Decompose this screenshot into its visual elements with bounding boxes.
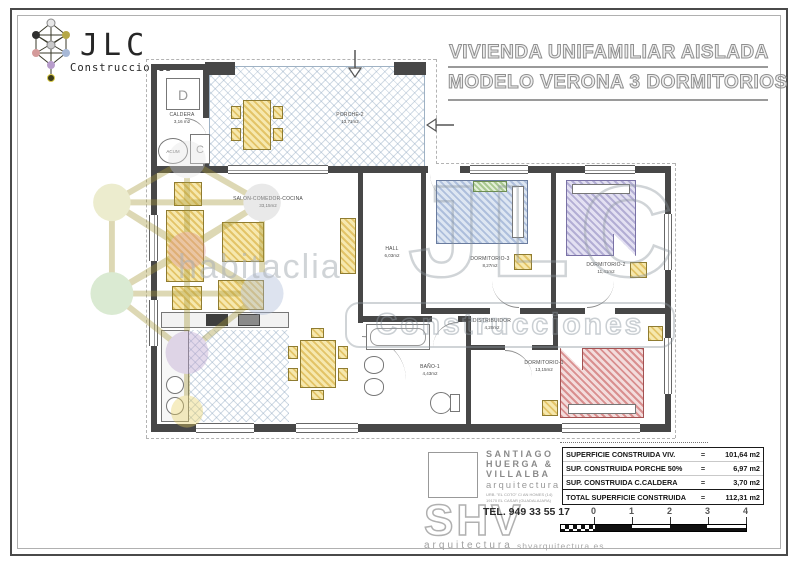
caldera-wall-left (151, 64, 157, 172)
boiler-c-unit: C (190, 134, 210, 164)
window-dorm1-south (562, 423, 640, 433)
scale-tick-mark (708, 517, 709, 524)
room-area: 33,15m2 (222, 203, 314, 209)
architect-name-line3: VILLALBA (486, 469, 551, 479)
architect-address-line1: URB. "EL COTO" C/ AN HOMES (14) (486, 492, 552, 497)
salon-armchair (172, 286, 202, 310)
scale-tick-mark (670, 517, 671, 524)
scale-tick-label: 3 (705, 506, 710, 516)
row-label: SUPERFICIE CONSTRUIDA VIV. (566, 450, 696, 459)
scale-tick-mark (632, 517, 633, 524)
wall-corridor-north-c (615, 308, 671, 314)
row-label: SUP. CONSTRUIDA C.CALDERA (566, 478, 696, 487)
kitchen-sink-bowl (166, 376, 184, 394)
salon-sideboard (218, 280, 264, 310)
wall-corridor-south-a (466, 345, 505, 350)
window-salon-north (228, 165, 328, 174)
scale-tick-mark (746, 517, 747, 524)
scale-segment (707, 525, 746, 531)
row-label: SUP. CONSTRUIDA PORCHE 50% (566, 464, 696, 473)
overhang-line-right (675, 163, 676, 438)
room-area: 4,43m2 (408, 371, 452, 377)
table-row: SUP. CONSTRUIDA PORCHE 50% = 6,97 m2 (563, 462, 763, 476)
kitchen-oven (238, 314, 260, 326)
architect-profession: arquitectura (486, 480, 560, 491)
room-name: SALON-COMEDOR-COCINA (222, 196, 314, 203)
table-row: SUPERFICIE CONSTRUIDA VIV. = 101,64 m2 (563, 448, 763, 462)
room-label-dorm2: DORMITORIO-2 11,41m2 (572, 262, 640, 274)
porch-floor (209, 66, 425, 170)
porch-pillar-right (394, 62, 426, 75)
drawing-title-line1: VIVIENDA UNIFAMILIAR AISLADA (448, 42, 770, 64)
wall-dorm3-dorm2 (551, 173, 556, 314)
areas-table: SUPERFICIE CONSTRUIDA VIV. = 101,64 m2 S… (562, 447, 764, 505)
bathtub-inner (370, 328, 426, 346)
salon-armchair (174, 182, 202, 206)
dining-chair (338, 346, 348, 359)
room-area: 4,20m2 (458, 325, 526, 331)
scale-tick-mark (594, 517, 595, 524)
salon-tv-unit (340, 218, 356, 274)
salon-coffee-table (222, 222, 264, 262)
room-label-porche: PORCHE-2 13,71m2 (318, 112, 382, 124)
porch-table (243, 100, 271, 150)
drawing-title-line2: MODELO VERONA 3 DORMITORIOS (448, 72, 770, 94)
kitchen-sink-bowl (166, 397, 184, 415)
dining-chair (311, 328, 324, 338)
architect-address-line2: 19170 EL CASAR (GUADALAJARA) (486, 498, 551, 503)
logo-company-name: JLC (80, 28, 149, 63)
toilet-tank (450, 394, 460, 412)
bath-sink (364, 378, 384, 396)
dorm3-pillow (512, 186, 524, 238)
porch-chair (273, 128, 283, 141)
boiler-d-unit: D (166, 78, 200, 110)
dining-chair (338, 368, 348, 381)
dorm3-desk (473, 181, 507, 192)
window-dorm1-east (664, 338, 672, 394)
title-bottom-line (448, 99, 768, 101)
entrance-door-gap (428, 166, 460, 173)
overhang-line-bottom (146, 438, 675, 439)
room-area: 11,41m2 (572, 269, 640, 275)
total-equals: = (696, 493, 710, 502)
window-dorm2-north (585, 165, 635, 174)
boiler-accumulator: ACUM (158, 138, 188, 164)
room-label-distribuidor: DISTRIBUIDOR 4,20m2 (458, 318, 526, 330)
scale-tick-label: 4 (743, 506, 748, 516)
row-equals: = (696, 450, 710, 459)
shv-logo-box (428, 452, 478, 498)
architect-name-line2: HUERGA & (486, 459, 554, 469)
dining-chair (311, 390, 324, 400)
row-equals: = (696, 464, 710, 473)
drawing-sheet: { "logo": { "company": "JLC", "subtitle"… (0, 0, 800, 566)
porch-pillar-left (205, 62, 235, 75)
scale-segment (670, 525, 708, 531)
wall-hall-dorm3 (421, 173, 426, 308)
jlc-tree-logo-icon (28, 18, 74, 84)
scale-segment (632, 525, 670, 531)
window-salon-south (296, 423, 358, 433)
room-label-bano1: BAÑO-1 4,43m2 (408, 364, 452, 376)
scale-tick-label: 0 (591, 506, 596, 516)
shv-watermark-logo: SHV (424, 496, 523, 546)
architect-phone: TEL. 949 33 55 17 (483, 506, 570, 518)
scale-segment-checker (561, 525, 595, 531)
room-label-hall: HALL 6,03m2 (368, 246, 416, 258)
wall-salon-hall (358, 173, 363, 323)
row-value: 3,70 m2 (710, 478, 760, 487)
room-label-salon: SALON-COMEDOR-COCINA 33,15m2 (222, 196, 314, 208)
shv-watermark-site: shvarquitectura.es (517, 541, 604, 551)
table-total-row: TOTAL SUPERFICIE CONSTRUIDA = 112,31 m2 (563, 490, 763, 504)
total-label: TOTAL SUPERFICIE CONSTRUIDA (566, 493, 696, 502)
dining-chair (288, 346, 298, 359)
salon-sofa (166, 210, 204, 282)
room-label-caldera: CALDERA 3,16 m2 (158, 112, 206, 124)
porch-chair (231, 128, 241, 141)
scale-bar-strip (560, 524, 747, 532)
entry-arrow-left-icon (426, 118, 454, 132)
dorm1-pillow (568, 404, 636, 414)
wall-bath-north (358, 316, 432, 322)
room-area: 6,03m2 (368, 253, 416, 259)
dorm2-bed-fold (613, 234, 636, 256)
wall-bath-east (466, 322, 471, 424)
room-label-dorm1: DORMITORIO-1 13,15m2 (508, 360, 580, 372)
table-row: SUP. CONSTRUIDA C.CALDERA = 3,70 m2 (563, 476, 763, 490)
total-value: 112,31 m2 (710, 493, 760, 502)
window-dorm3-north (470, 165, 528, 174)
room-label-dorm3: DORMITORIO-3 8,27m2 (456, 256, 524, 268)
room-area: 8,27m2 (456, 263, 524, 269)
bath-sink (364, 356, 384, 374)
kitchen-stove (206, 314, 228, 326)
porch-chair (273, 106, 283, 119)
bathtub (366, 324, 430, 350)
dining-table (300, 340, 336, 388)
window-salon-west-2 (149, 300, 158, 346)
window-dorm2-east (664, 214, 672, 270)
scale-tick-label: 2 (667, 506, 672, 516)
window-kitchen-south (196, 423, 254, 433)
room-area: 13,15m2 (508, 367, 580, 373)
entry-arrow-down-icon (347, 50, 363, 78)
toilet (430, 392, 452, 414)
table-top-dotted-line (560, 442, 708, 443)
scale-bar: 0 1 2 3 4 (560, 506, 760, 536)
row-value: 6,97 m2 (710, 464, 760, 473)
shv-watermark-caption: arquitectura (424, 540, 513, 551)
dining-chair (288, 368, 298, 381)
caldera-wall-right-upper (203, 64, 209, 118)
scale-segment (595, 525, 633, 531)
overhang-line-top (146, 59, 436, 60)
dorm2-pillow (572, 184, 630, 194)
wall-west (151, 166, 157, 432)
wall-corridor-north-a (421, 308, 490, 314)
wall-distrib-dorm1 (553, 314, 558, 350)
dorm1-nightstand (542, 400, 558, 416)
row-value: 101,64 m2 (710, 450, 760, 459)
scale-tick-label: 1 (629, 506, 634, 516)
room-area: 13,71m2 (318, 119, 382, 125)
caldera-wall-top (151, 64, 209, 70)
porch-chair (231, 106, 241, 119)
architect-name-line1: SANTIAGO (486, 449, 554, 459)
row-equals: = (696, 478, 710, 487)
dorm1-nightstand (648, 326, 663, 341)
title-separator-line (448, 66, 768, 68)
room-area: 3,16 m2 (158, 119, 206, 125)
window-salon-west-1 (149, 215, 158, 261)
overhang-line-east (436, 163, 675, 164)
overhang-line-left (146, 59, 147, 438)
overhang-line-porch (436, 59, 437, 164)
